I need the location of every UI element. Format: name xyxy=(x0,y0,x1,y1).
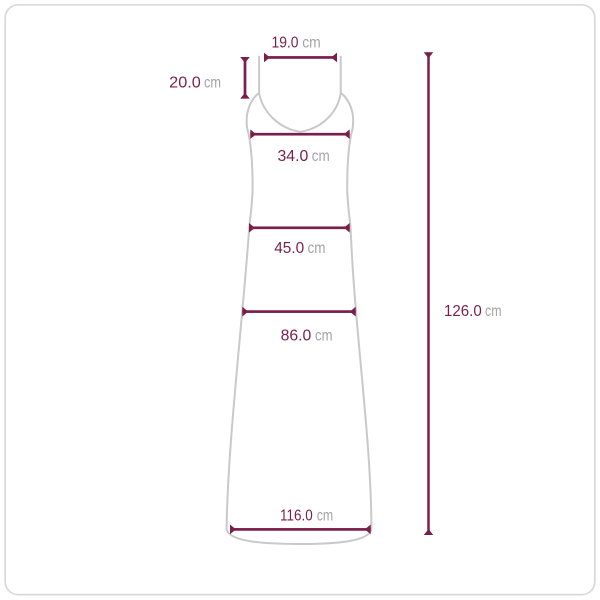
svg-text:cm: cm xyxy=(302,35,321,52)
svg-text:19.0: 19.0 xyxy=(272,35,299,52)
svg-text:cm: cm xyxy=(204,75,221,92)
svg-text:45.0: 45.0 xyxy=(274,240,304,257)
svg-text:cm: cm xyxy=(308,240,326,257)
svg-text:34.0: 34.0 xyxy=(278,148,309,165)
svg-text:116.0: 116.0 xyxy=(280,507,313,524)
svg-text:86.0: 86.0 xyxy=(281,328,312,345)
svg-text:cm: cm xyxy=(485,303,502,320)
svg-text:cm: cm xyxy=(312,148,330,165)
svg-text:cm: cm xyxy=(315,328,333,345)
svg-text:126.0: 126.0 xyxy=(444,303,482,320)
svg-text:cm: cm xyxy=(317,507,334,524)
svg-text:20.0: 20.0 xyxy=(169,75,201,92)
